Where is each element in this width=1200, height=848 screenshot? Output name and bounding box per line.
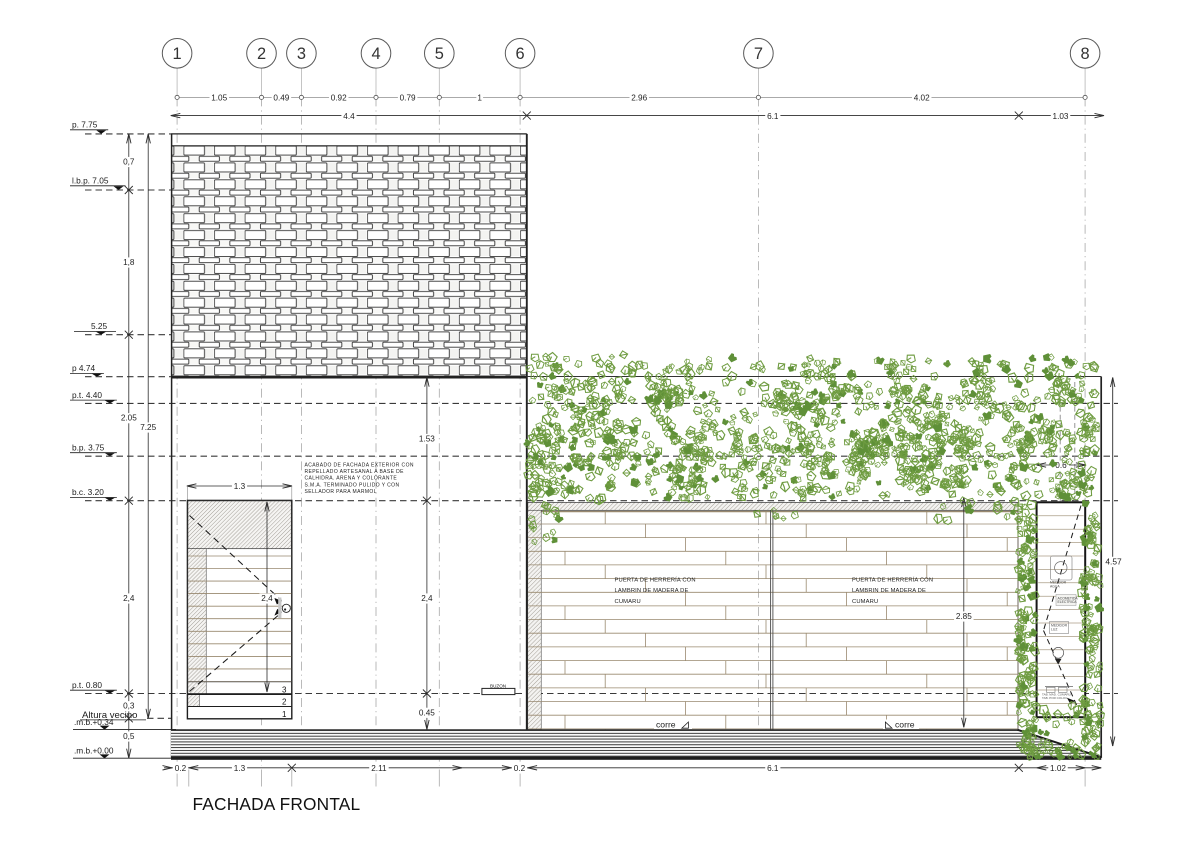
svg-text:p.t. 0.80: p.t. 0.80: [72, 680, 102, 690]
svg-text:corre: corre: [656, 720, 676, 730]
svg-text:2: 2: [257, 45, 266, 63]
svg-text:CUMARU: CUMARU: [615, 599, 641, 605]
svg-text:b.p. 3.75: b.p. 3.75: [72, 443, 105, 453]
svg-text:b.c. 3.20: b.c. 3.20: [72, 487, 104, 497]
svg-text:2.85: 2.85: [956, 612, 972, 621]
svg-text:PUERTA DE HERRERÍA CON: PUERTA DE HERRERÍA CON: [852, 576, 933, 583]
svg-text:7.25: 7.25: [140, 423, 156, 432]
svg-text:p. 7.75: p. 7.75: [72, 120, 98, 130]
svg-text:LUZ: LUZ: [1051, 627, 1057, 631]
svg-text:TAB. POR COLOC.: TAB. POR COLOC.: [1042, 696, 1068, 700]
svg-text:0.49: 0.49: [273, 94, 289, 103]
svg-text:3: 3: [282, 685, 287, 694]
svg-text:0,3: 0,3: [123, 702, 135, 711]
svg-text:4.4: 4.4: [343, 112, 355, 121]
svg-text:corre: corre: [895, 720, 915, 730]
svg-text:1.05: 1.05: [211, 94, 227, 103]
svg-text:2: 2: [282, 698, 287, 707]
svg-text:2.11: 2.11: [371, 764, 387, 773]
svg-text:1: 1: [282, 710, 287, 719]
svg-text:CALHIDRA. ARENA Y COLORANTE: CALHIDRA. ARENA Y COLORANTE: [305, 476, 398, 482]
svg-text:S.M.A. TERMINADO PULIDO Y CON: S.M.A. TERMINADO PULIDO Y CON: [305, 482, 400, 488]
svg-text:5: 5: [435, 45, 444, 63]
svg-text:REPELLADO ARTESANAL A BASE DE: REPELLADO ARTESANAL A BASE DE: [305, 469, 405, 475]
svg-text:8: 8: [1081, 45, 1090, 63]
svg-text:0,5: 0,5: [123, 732, 135, 741]
svg-text:6.1: 6.1: [767, 112, 779, 121]
svg-text:PUERTA DE HERRERÍA CON: PUERTA DE HERRERÍA CON: [615, 576, 696, 583]
svg-text:1.02: 1.02: [1050, 764, 1066, 773]
svg-text:1: 1: [477, 94, 482, 103]
svg-text:4.02: 4.02: [914, 94, 930, 103]
svg-text:AGUA: AGUA: [1050, 584, 1060, 588]
svg-text:2.96: 2.96: [631, 94, 647, 103]
svg-text:.m.b.+0.00: .m.b.+0.00: [74, 746, 114, 756]
svg-text:1: 1: [173, 45, 182, 63]
svg-text:p 4.74: p 4.74: [72, 363, 95, 373]
svg-text:SELLADOR PARA MARMOL: SELLADOR PARA MARMOL: [305, 489, 377, 495]
svg-text:LAMBRIN DE MADERA DE: LAMBRIN DE MADERA DE: [852, 588, 926, 594]
svg-text:2,4: 2,4: [123, 594, 135, 603]
svg-text:FACHADA FRONTAL: FACHADA FRONTAL: [193, 794, 361, 814]
svg-text:0.2: 0.2: [514, 764, 526, 773]
svg-text:6: 6: [516, 45, 525, 63]
svg-text:LAMBRIN DE MADERA DE: LAMBRIN DE MADERA DE: [615, 588, 689, 594]
svg-text:6.1: 6.1: [767, 764, 779, 773]
svg-text:1.3: 1.3: [234, 764, 246, 773]
svg-text:1.03: 1.03: [1053, 112, 1069, 121]
svg-text:4: 4: [371, 45, 380, 63]
svg-text:CUMARU: CUMARU: [852, 599, 878, 605]
svg-text:ACABADO DE FACHADA EXTERIOR CO: ACABADO DE FACHADA EXTERIOR CON: [305, 462, 414, 468]
svg-text:.m.b.+0.34: .m.b.+0.34: [74, 717, 114, 727]
svg-text:0.2: 0.2: [175, 764, 187, 773]
svg-text:2,4: 2,4: [421, 594, 433, 603]
svg-text:2.05: 2.05: [121, 414, 137, 423]
svg-text:0.92: 0.92: [331, 94, 347, 103]
svg-text:l.b.p. 7.05: l.b.p. 7.05: [72, 176, 109, 186]
svg-text:4.57: 4.57: [1105, 557, 1122, 567]
svg-text:5.25: 5.25: [91, 321, 108, 331]
svg-text:1.3: 1.3: [234, 482, 246, 491]
svg-text:1.53: 1.53: [419, 435, 435, 444]
svg-text:0.79: 0.79: [400, 94, 416, 103]
svg-text:ELECTRICA: ELECTRICA: [1058, 600, 1078, 604]
svg-text:BUZON: BUZON: [490, 683, 506, 688]
svg-text:1,8: 1,8: [123, 258, 135, 267]
svg-text:7: 7: [754, 45, 763, 63]
svg-text:0.45: 0.45: [419, 708, 435, 717]
svg-text:0,7: 0,7: [123, 158, 135, 167]
svg-text:3: 3: [297, 45, 306, 63]
svg-text:2,4: 2,4: [261, 594, 273, 603]
svg-text:p.t. 4.40: p.t. 4.40: [72, 390, 102, 400]
